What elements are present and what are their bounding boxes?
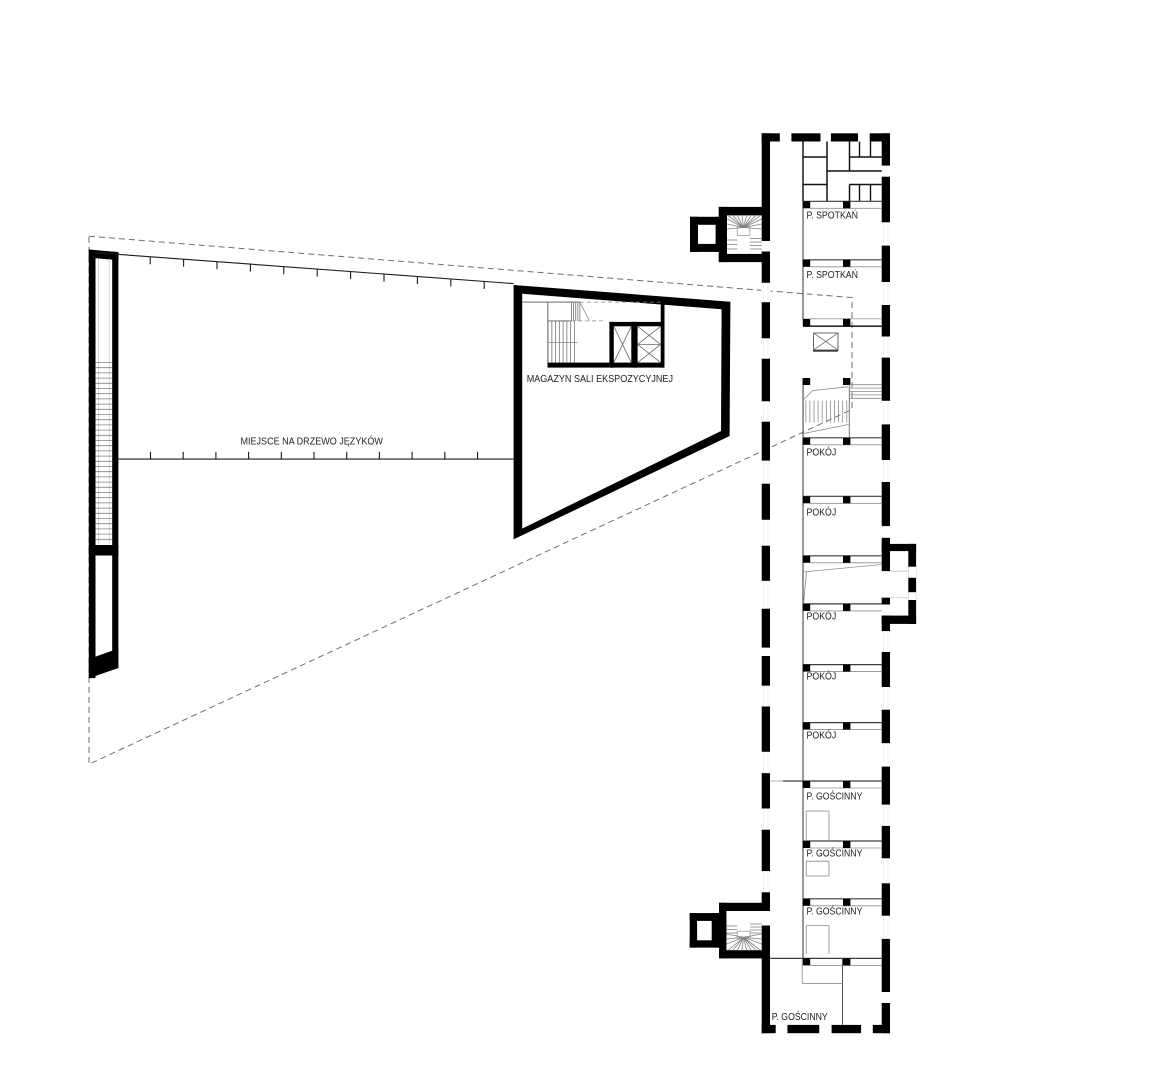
svg-text:MAGAZYN SALI EKSPOZYCYJNEJ: MAGAZYN SALI EKSPOZYCYJNEJ (527, 374, 673, 385)
svg-text:P. GOŚCINNY: P. GOŚCINNY (807, 904, 863, 917)
svg-text:POKÓJ: POKÓJ (807, 446, 837, 459)
svg-text:P. SPOTKAŃ: P. SPOTKAŃ (807, 208, 859, 221)
svg-text:POKÓJ: POKÓJ (807, 610, 837, 623)
svg-text:P. SPOTKAŃ: P. SPOTKAŃ (807, 268, 859, 281)
svg-text:POKÓJ: POKÓJ (807, 505, 837, 518)
svg-text:P. GOŚCINNY: P. GOŚCINNY (807, 789, 863, 802)
svg-text:POKÓJ: POKÓJ (807, 670, 837, 683)
svg-text:P. GOŚCINNY: P. GOŚCINNY (772, 1010, 828, 1023)
svg-text:POKÓJ: POKÓJ (807, 728, 837, 741)
svg-text:MIEJSCE NA DRZEWO JĘZYKÓW: MIEJSCE NA DRZEWO JĘZYKÓW (241, 435, 384, 448)
svg-text:P. GOŚCINNY: P. GOŚCINNY (807, 847, 863, 860)
